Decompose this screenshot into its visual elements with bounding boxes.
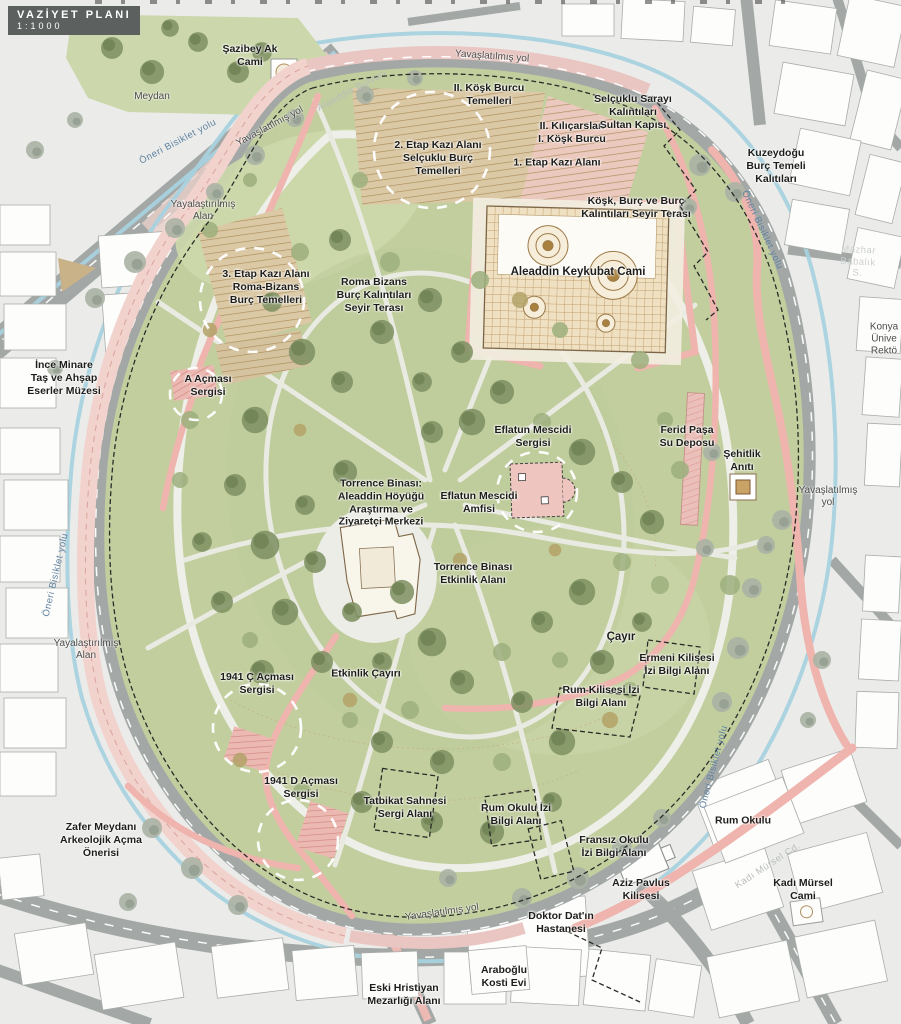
label-eflatun-mescidi-sergisi: Eflatun Mescidi Sergisi bbox=[494, 424, 571, 450]
label-torrence-etkinlik: Torrence Binası Etkinlik Alanı bbox=[434, 561, 513, 587]
street-label-mazhar-babalik: Mazhar Babalık S. bbox=[836, 244, 881, 281]
label-rum-okulu: Rum Okulu bbox=[715, 815, 771, 828]
label-rum-kilisesi-izi: Rum Kilisesi İzi Bilgi Alanı bbox=[562, 684, 639, 710]
label-meydan: Meydan bbox=[134, 91, 170, 103]
label-ermeni-kilisesi-izi: Ermeni Kilisesi İzi Bilgi Alanı bbox=[639, 652, 714, 678]
label-1941-d-acmasi: 1941 D Açması Sergisi bbox=[264, 775, 338, 801]
label-kosk-burc-seyir: Köşk, Burç ve Burç Kalıntıları Seyir Ter… bbox=[581, 195, 691, 221]
label-kadi-mursel-cami: Kadı Mürsel Cami bbox=[773, 877, 833, 903]
label-kosk-burcu-2-temelleri: II. Köşk Burcu Temelleri bbox=[454, 82, 525, 108]
cropped-text-remnant bbox=[95, 0, 807, 4]
label-etap-3-kazi: 3. Etap Kazı Alanı Roma-Bizans Burç Teme… bbox=[222, 268, 309, 306]
label-sehitlik-aniti: Şehitlik Anıtı bbox=[723, 448, 760, 474]
label-tatbikat-sahnesi: Tatbikat Sahnesi Sergi Alanı bbox=[364, 795, 447, 821]
label-etap-2-kazi: 2. Etap Kazı Alanı Selçuklu Burç Temelle… bbox=[394, 139, 481, 177]
label-yayalastirilmis-alan-kuzey: Yayalaştırılmış Alan bbox=[171, 199, 236, 223]
label-ferid-pasa-su-deposu: Ferid Paşa Su Deposu bbox=[660, 424, 715, 450]
label-sazibey-ak-cami: Şazibey Ak Cami bbox=[222, 43, 277, 69]
label-yavaslatilmis-yol-sag: Yavaşlatılmış yol bbox=[799, 485, 858, 509]
label-fransiz-okulu-izi: Fransız Okulu İzi Bilgi Alanı bbox=[579, 834, 648, 860]
label-ince-minare-muzesi: İnce Minare Taş ve Ahşap Eserler Müzesi bbox=[27, 359, 101, 397]
label-torrence-merkezi: Torrence Binası: Aleaddin Höyüğü Araştır… bbox=[338, 477, 424, 528]
label-konya-universitesi: Konya Ünive Rektö bbox=[870, 322, 898, 359]
label-etkinlik-cayiri: Etkinlik Çayırı bbox=[331, 668, 400, 681]
aleaddin-mosque-building bbox=[469, 198, 685, 365]
plan-title: VAZİYET PLANI bbox=[17, 9, 131, 21]
label-selcuklu-sarayi: Selçuklu Sarayı Kalıntıları Sultan Kapıs… bbox=[594, 93, 672, 131]
label-zafer-meydani: Zafer Meydanı Arkeolojik Açma Önerisi bbox=[60, 821, 142, 859]
label-1941-c-acmasi: 1941 Ç Açması Sergisi bbox=[220, 671, 294, 697]
label-eski-hristiyan-mezarligi: Eski Hristiyan Mezarlığı Alanı bbox=[367, 982, 440, 1008]
label-roma-bizans-seyir: Roma Bizans Burç Kalıntıları Seyir Teras… bbox=[337, 276, 412, 314]
label-kuzeydogu-burc: Kuzeydoğu Burç Temeli Kalıtıları bbox=[746, 147, 805, 185]
label-araboglu-kosti-evi: Araboğlu Kosti Evi bbox=[481, 964, 527, 990]
label-a-acmasi-sergisi: A Açması Sergisi bbox=[184, 373, 231, 399]
site-plan-sheet: VAZİYET PLANI 1:1000 Şazibey Ak Cami Mey… bbox=[0, 0, 901, 1024]
label-cayir: Çayır bbox=[607, 630, 636, 644]
label-aziz-pavlus-kilisesi: Aziz Pavlus Kilisesi bbox=[612, 877, 670, 903]
label-etap-1-kazi: 1. Etap Kazı Alanı bbox=[513, 157, 600, 170]
label-doktor-datin-hastanesi: Doktor Dat'ın Hastanesi bbox=[528, 910, 594, 936]
label-aleaddin-keykubat-cami: Aleaddin Keykubat Cami bbox=[511, 265, 646, 279]
plan-scale: 1:1000 bbox=[17, 21, 131, 31]
sehitlik-monument bbox=[730, 474, 756, 500]
label-rum-okulu-izi: Rum Okulu İzi Bilgi Alanı bbox=[481, 802, 551, 828]
label-yayalastirilmis-alan-bati: Yayalaştırılmış Alan bbox=[54, 638, 119, 662]
label-eflatun-mescidi-amfisi: Eflatun Mescidi Amfisi bbox=[440, 490, 517, 516]
plan-title-box: VAZİYET PLANI 1:1000 bbox=[8, 6, 140, 35]
